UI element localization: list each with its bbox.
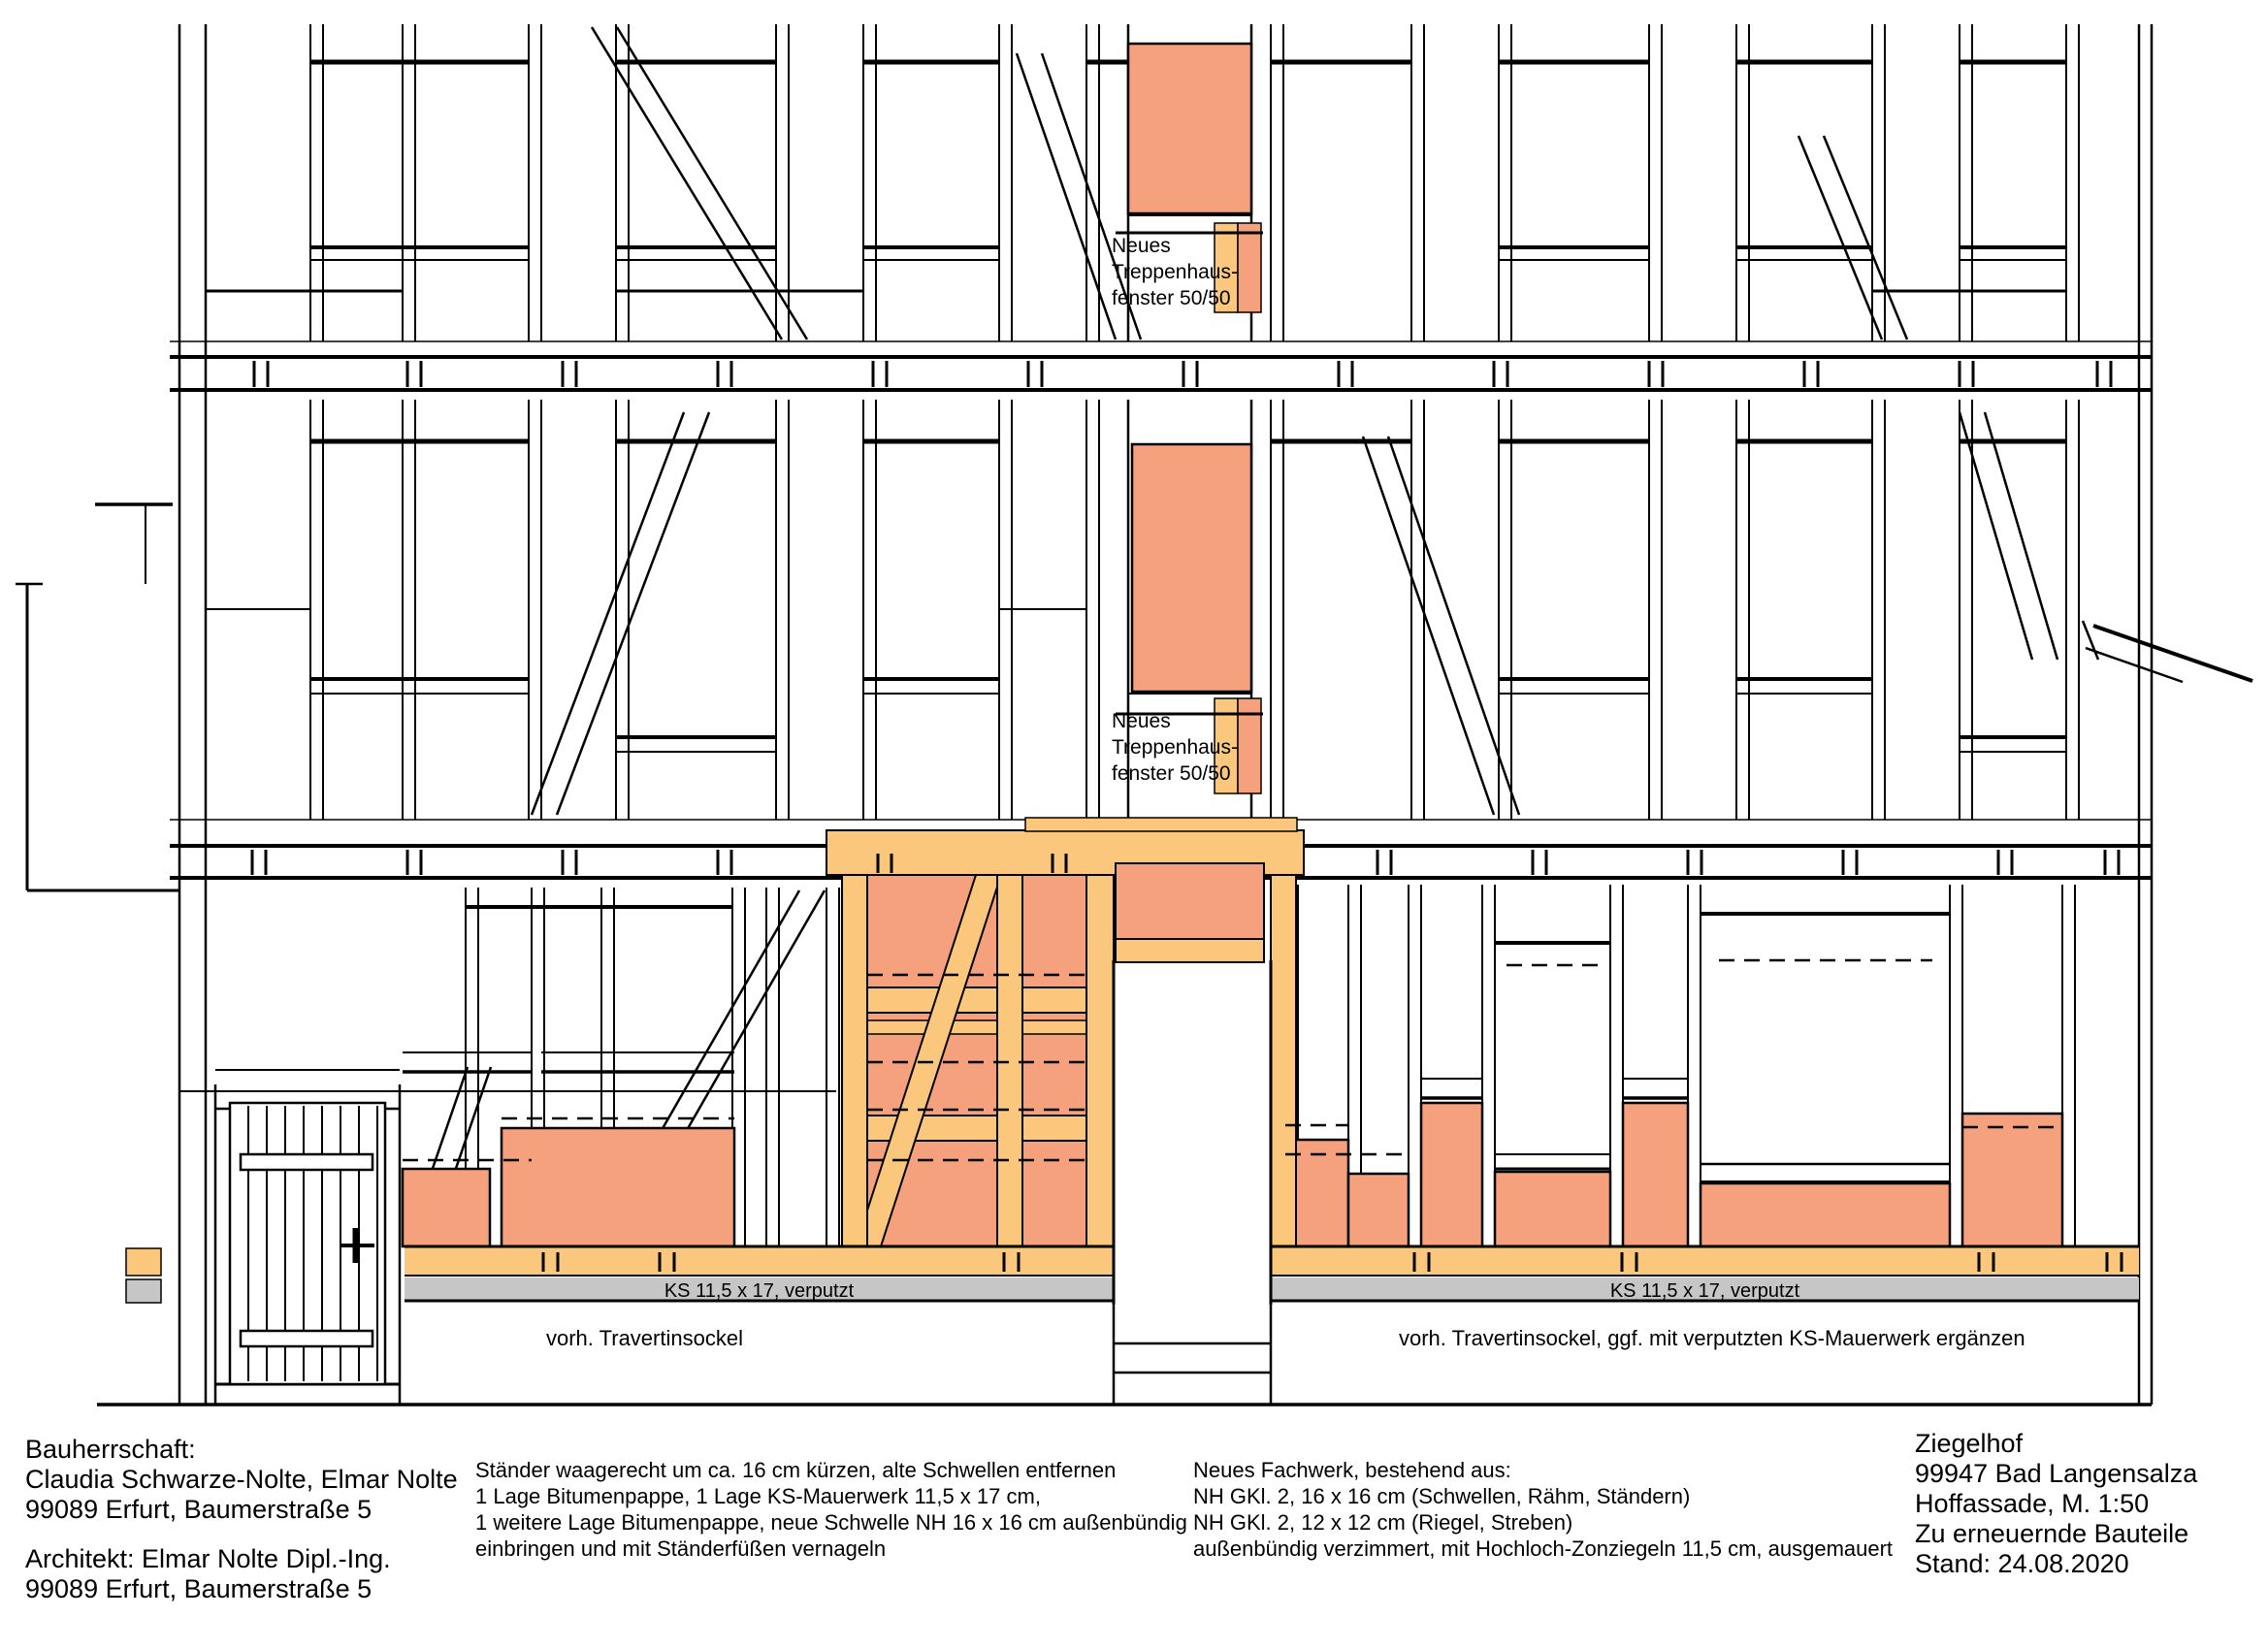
infill-patch [502, 1128, 734, 1246]
infill-patch [1962, 1114, 2062, 1246]
text-line: 99089 Erfurt, Baumerstraße 5 [25, 1574, 391, 1604]
text-line: Neues Fachwerk, bestehend aus: [1193, 1457, 1893, 1483]
infill-patch [1495, 1172, 1610, 1246]
text-line: NH GKl. 2, 16 x 16 cm (Schwellen, Rähm, … [1193, 1483, 1893, 1509]
door-batten [241, 1154, 373, 1170]
door-batten [241, 1331, 373, 1346]
new-post [1086, 875, 1114, 1246]
door-lintel-panel [1116, 863, 1264, 939]
text-line: 1 weitere Lage Bitumenpappe, neue Schwel… [475, 1509, 1187, 1536]
sill-note: Ständer waagerecht um ca. 16 cm kürzen, … [475, 1457, 1187, 1562]
stair-window-label-upper: Neues Treppenhaus- fenster 50/50 [1112, 233, 1238, 311]
project-title-block: Ziegelhof 99947 Bad Langensalza Hoffassa… [1915, 1429, 2197, 1579]
infill-patch [1701, 1183, 1950, 1246]
infill-patch [1348, 1174, 1409, 1246]
text-line: Bauherrschaft: [25, 1435, 458, 1465]
text-line: Treppenhaus- [1112, 259, 1238, 285]
text-line: einbringen und mit Ständerfüßen vernagel… [475, 1536, 1187, 1562]
text-line: Neues [1112, 233, 1238, 259]
text-line: Zu erneuernde Bauteile [1915, 1519, 2197, 1549]
new-post [997, 875, 1022, 1246]
stair-window-middle [1132, 444, 1251, 692]
infill-patch [1421, 1103, 1482, 1246]
text-line: NH GKl. 2, 12 x 12 cm (Riegel, Streben) [1193, 1509, 1893, 1536]
sockel-label-right: vorh. Travertinsockel, ggf. mit verputzt… [1399, 1326, 2025, 1351]
architect-block: Architekt: Elmar Nolte Dipl.-Ing. 99089 … [25, 1544, 391, 1604]
text-line: Ständer waagerecht um ca. 16 cm kürzen, … [475, 1457, 1187, 1483]
text-line: 1 Lage Bitumenpappe, 1 Lage KS-Mauerwerk… [475, 1483, 1187, 1509]
stair-window-label-lower: Neues Treppenhaus- fenster 50/50 [1112, 708, 1238, 787]
text-line: Hoffassade, M. 1:50 [1915, 1489, 2197, 1519]
new-post [842, 875, 867, 1246]
text-line: außenbündig verzimmert, mit Hochloch-Zon… [1193, 1536, 1893, 1562]
text-line: Treppenhaus- [1112, 734, 1238, 760]
door-lintel-beam [1116, 939, 1264, 962]
text-line: Claudia Schwarze-Nolte, Elmar Nolte [25, 1465, 458, 1495]
text-line: fenster 50/50 [1112, 760, 1238, 787]
stair-strip [1238, 223, 1261, 312]
new-rail [867, 987, 1086, 1013]
ks-band-label-left: KS 11,5 x 17, verputzt [405, 1278, 1114, 1305]
sill-band [1271, 1246, 2139, 1276]
sockel-label-left: vorh. Travertinsockel [546, 1326, 743, 1351]
text-line: 99947 Bad Langensalza [1915, 1459, 2197, 1489]
text-line: Architekt: Elmar Nolte Dipl.-Ing. [25, 1544, 391, 1574]
ks-band [126, 1279, 161, 1303]
new-rail [867, 1020, 1086, 1034]
text-line: Neues [1112, 708, 1238, 734]
infill-patch [1623, 1103, 1688, 1246]
text-line: fenster 50/50 [1112, 285, 1238, 311]
text-line: Ziegelhof [1915, 1429, 2197, 1459]
drawing-sheet: Neues Treppenhaus- fenster 50/50 Neues T… [0, 0, 2268, 1649]
sill-band [126, 1248, 161, 1276]
new-framework-infill [867, 875, 1114, 1246]
text-line: Stand: 24.08.2020 [1915, 1549, 2197, 1579]
stair-window-upper [1128, 44, 1251, 213]
raehm-beam [1025, 818, 1297, 831]
text-line: 99089 Erfurt, Baumerstraße 5 [25, 1495, 458, 1525]
framework-note: Neues Fachwerk, bestehend aus: NH GKl. 2… [1193, 1457, 1893, 1562]
sill-band [405, 1246, 1114, 1276]
new-post [1271, 875, 1296, 1246]
infill-patch [403, 1169, 490, 1246]
client-block: Bauherrschaft: Claudia Schwarze-Nolte, E… [25, 1435, 458, 1525]
ks-band-label-right: KS 11,5 x 17, verputzt [1271, 1278, 2139, 1305]
